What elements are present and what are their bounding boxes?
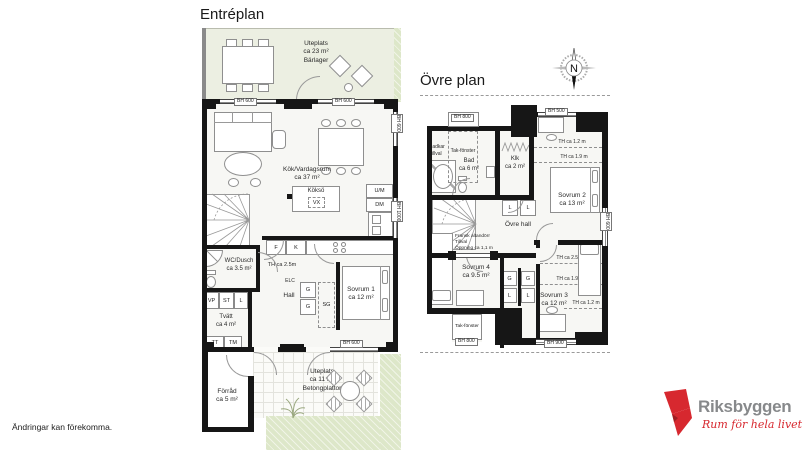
room-area: ca 12 m² [348,294,373,301]
option-line: Öppning ca 1,1 m [455,246,493,251]
pouf [228,178,239,187]
spiral-staircase [204,194,250,246]
grass-right [380,354,401,450]
dining-chair [321,119,331,127]
room-note: Betongplattor [303,385,342,392]
linen-closet: L [234,292,248,309]
pillow [382,270,388,284]
option-line: Tillval [455,240,467,245]
window-label: BH 1000 [391,201,403,222]
clothes-rail-icon [502,142,529,152]
wall-pier [202,342,214,352]
sliding-wardrobe: SG [318,282,335,328]
upper-hall-label: Övre hall [498,221,538,229]
wall-segment [518,268,521,306]
outdoor-chair [258,84,269,92]
wall-pier [495,308,522,345]
cleaning-closet: ST [219,292,234,309]
coffee-table [224,152,262,176]
door-opening [540,240,558,245]
toilet [206,276,216,288]
brand-tagline: Rum för hela livet [702,418,802,431]
pillow [432,290,451,301]
exterior-notch [479,112,512,126]
dining-chair [351,167,361,175]
compass-rose: N [550,44,598,92]
door-opening [536,248,540,264]
skylight-label: Tak-fönster [449,148,477,155]
height-line [534,147,602,148]
room-area: ca 37 m² [294,174,319,181]
wardrobe: G [300,299,316,315]
wardrobe: G [502,271,517,286]
linen-closet: L [502,288,517,303]
outdoor-chair [242,84,253,92]
outdoor-chair [226,84,237,92]
skylight-label: Tak-fönster [454,324,480,330]
skylight-well: Tak-fönster [452,314,482,340]
ceiling-height-label: TH ca 1.2 m [552,139,592,146]
room-name: Uteplats [304,40,328,47]
wall-segment [529,112,534,200]
sink [486,166,495,178]
sofa [214,112,272,152]
room-area: ca 3.5 m² [226,266,251,272]
side-table [344,83,353,92]
wall-pier [202,99,216,109]
wall-pier [384,99,398,109]
room-area: ca 2 m² [505,164,525,170]
island-label: Köksö [292,188,340,196]
ceiling-height-label: TH ca 1.9 m [554,154,594,161]
wall-pier [575,332,608,345]
room-name: WC/Dusch [225,258,254,264]
hall-label: Hall [276,292,302,300]
bedroom2-label: Sovrum 2 ca 13 m² [550,192,594,209]
exterior-notch [482,314,495,342]
window-label: BH 800 [451,114,474,122]
room-area: ca 5 m² [216,396,238,403]
wall-segment [202,427,254,432]
desk [538,314,566,332]
room-name: Klk [511,156,519,162]
window-label: BH 600 [234,98,257,106]
island-post [287,194,292,199]
desk-stool [546,306,558,314]
wall-segment [248,376,254,432]
brand-name: Riksbyggen [698,397,791,417]
outdoor-chair [242,39,253,47]
wc-label: WC/Dusch ca 3.5 m² [218,258,260,274]
window-label: BH 600 [340,340,363,348]
window-label: BH 500 [545,108,568,116]
wall-segment [427,195,500,200]
disclaimer: Ändringar kan förekomma. [12,422,112,432]
entreplan-title: Entréplan [200,6,264,23]
separator-dashed [420,352,610,353]
elc-label: ELC [280,278,300,285]
room-name: Sovrum 2 [558,192,586,199]
wall-segment [202,245,260,249]
sofa-cushion-line [252,112,253,122]
room-name: Kök/Vardagsrum [283,166,331,173]
french-door-opening [454,253,492,258]
stove-burner [341,248,346,253]
laundry-label: Tvätt ca 4 m² [208,314,244,330]
pillow [382,298,388,312]
dishwasher: DM [366,198,393,212]
pillow [592,170,598,183]
wall-segment [427,126,432,314]
storage-label: Förråd ca 5 m² [206,388,248,405]
skylight [448,131,478,183]
terrace-top-label: Uteplats ca 23 m² Bärlager [288,40,344,65]
vx-box: VX [308,197,325,208]
oven-micro-cabinet: U/M [366,184,393,198]
room-name: Sovrum 1 [347,286,375,293]
outdoor-chair [258,39,269,47]
wall-pier [386,342,398,352]
patio-table [340,381,360,401]
room-note: Bärlager [304,57,329,64]
armchair [272,130,286,149]
option-line: Fransk altandörr [455,234,490,239]
wall-segment [202,99,207,352]
linen-closet: L [521,288,535,303]
room-area: ca 4 m² [216,322,236,328]
exterior-notch [427,112,448,126]
desk [538,117,564,133]
toilet-tank [206,270,216,275]
wall-segment [248,288,252,352]
room-name: Förråd [217,388,236,395]
sink-bowl [372,215,381,224]
outdoor-dining-table [222,46,274,84]
wardrobe: G [521,271,535,286]
wall-segment [500,195,534,200]
window-label: BH 600 [391,114,403,133]
ovreplan-title: Övre plan [420,72,485,89]
fridge: K [286,240,306,255]
room-area: ca 9.5 m² [462,272,489,279]
compass-north: N [570,63,578,75]
room-area: ca 23 m² [303,48,328,55]
window-label: BH 600 [332,98,355,106]
exterior-notch [427,314,452,342]
wall-pier [448,251,456,260]
dining-table [318,128,364,166]
wardrobe: G [300,282,316,298]
livingroom-label: Kök/Vardagsrum ca 37 m² [278,166,336,183]
window-label: BH 900 [544,340,567,348]
wall-pier [284,99,312,109]
pouf [250,178,261,187]
french-door-label: Fransk altandörr Tillval Öppning ca 1,1 … [455,234,499,252]
room-area: ca 13 m² [559,200,584,207]
window-label: BH 600 [600,212,612,231]
wall-segment [495,128,500,200]
riksbyggen-logo-icon [662,388,694,438]
pillow [580,244,599,255]
outdoor-chair [226,39,237,47]
floorplan-sheet: { "colors": {"wall":"#161616","terrace":… [0,0,810,455]
stove-burner [341,242,346,247]
room-name: Sovrum 3 [540,292,568,299]
wall-pier [490,251,498,260]
dining-chair [336,119,346,127]
sofa-cushion-line [232,112,233,122]
plant-icon [280,396,306,422]
dining-chair [351,119,361,127]
bedroom1-label: Sovrum 1 ca 12 m² [340,286,382,303]
wall-pier [280,344,304,352]
sofa-cushion-line [214,122,272,123]
window-label: BH 800 [455,338,478,346]
height-line [534,162,602,163]
dining-chair [336,167,346,175]
fence [202,28,206,100]
dresser [456,290,484,306]
sink-bowl [372,226,381,235]
separator-dashed [420,95,610,96]
room-name: Tvätt [219,314,232,320]
hedge-strip [394,28,401,102]
klk-label: Klk ca 2 m² [500,156,530,172]
